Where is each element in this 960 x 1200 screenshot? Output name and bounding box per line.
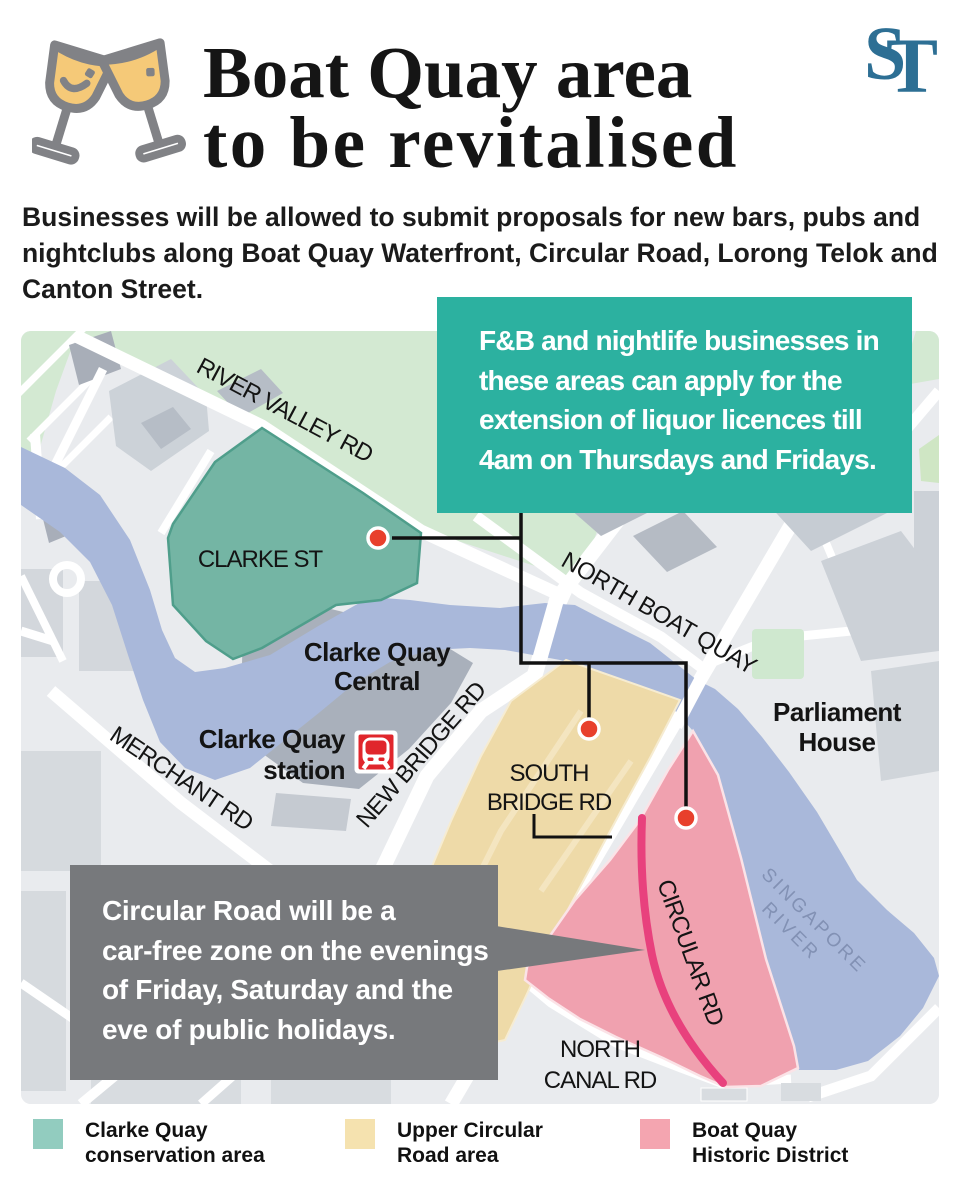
svg-text:T: T bbox=[886, 22, 938, 109]
svg-text:Clarke Quay: Clarke Quay bbox=[199, 724, 346, 754]
svg-text:Central: Central bbox=[334, 666, 420, 696]
svg-text:SOUTH: SOUTH bbox=[510, 760, 589, 787]
svg-text:House: House bbox=[799, 727, 876, 757]
svg-text:CANAL RD: CANAL RD bbox=[544, 1067, 657, 1094]
svg-text:Parliament: Parliament bbox=[773, 697, 902, 727]
svg-text:CLARKE ST: CLARKE ST bbox=[198, 546, 324, 573]
svg-text:Clarke Quay: Clarke Quay bbox=[304, 637, 451, 667]
svg-text:BRIDGE RD: BRIDGE RD bbox=[487, 789, 612, 816]
svg-text:NORTH: NORTH bbox=[560, 1036, 640, 1063]
svg-text:station: station bbox=[263, 755, 345, 785]
